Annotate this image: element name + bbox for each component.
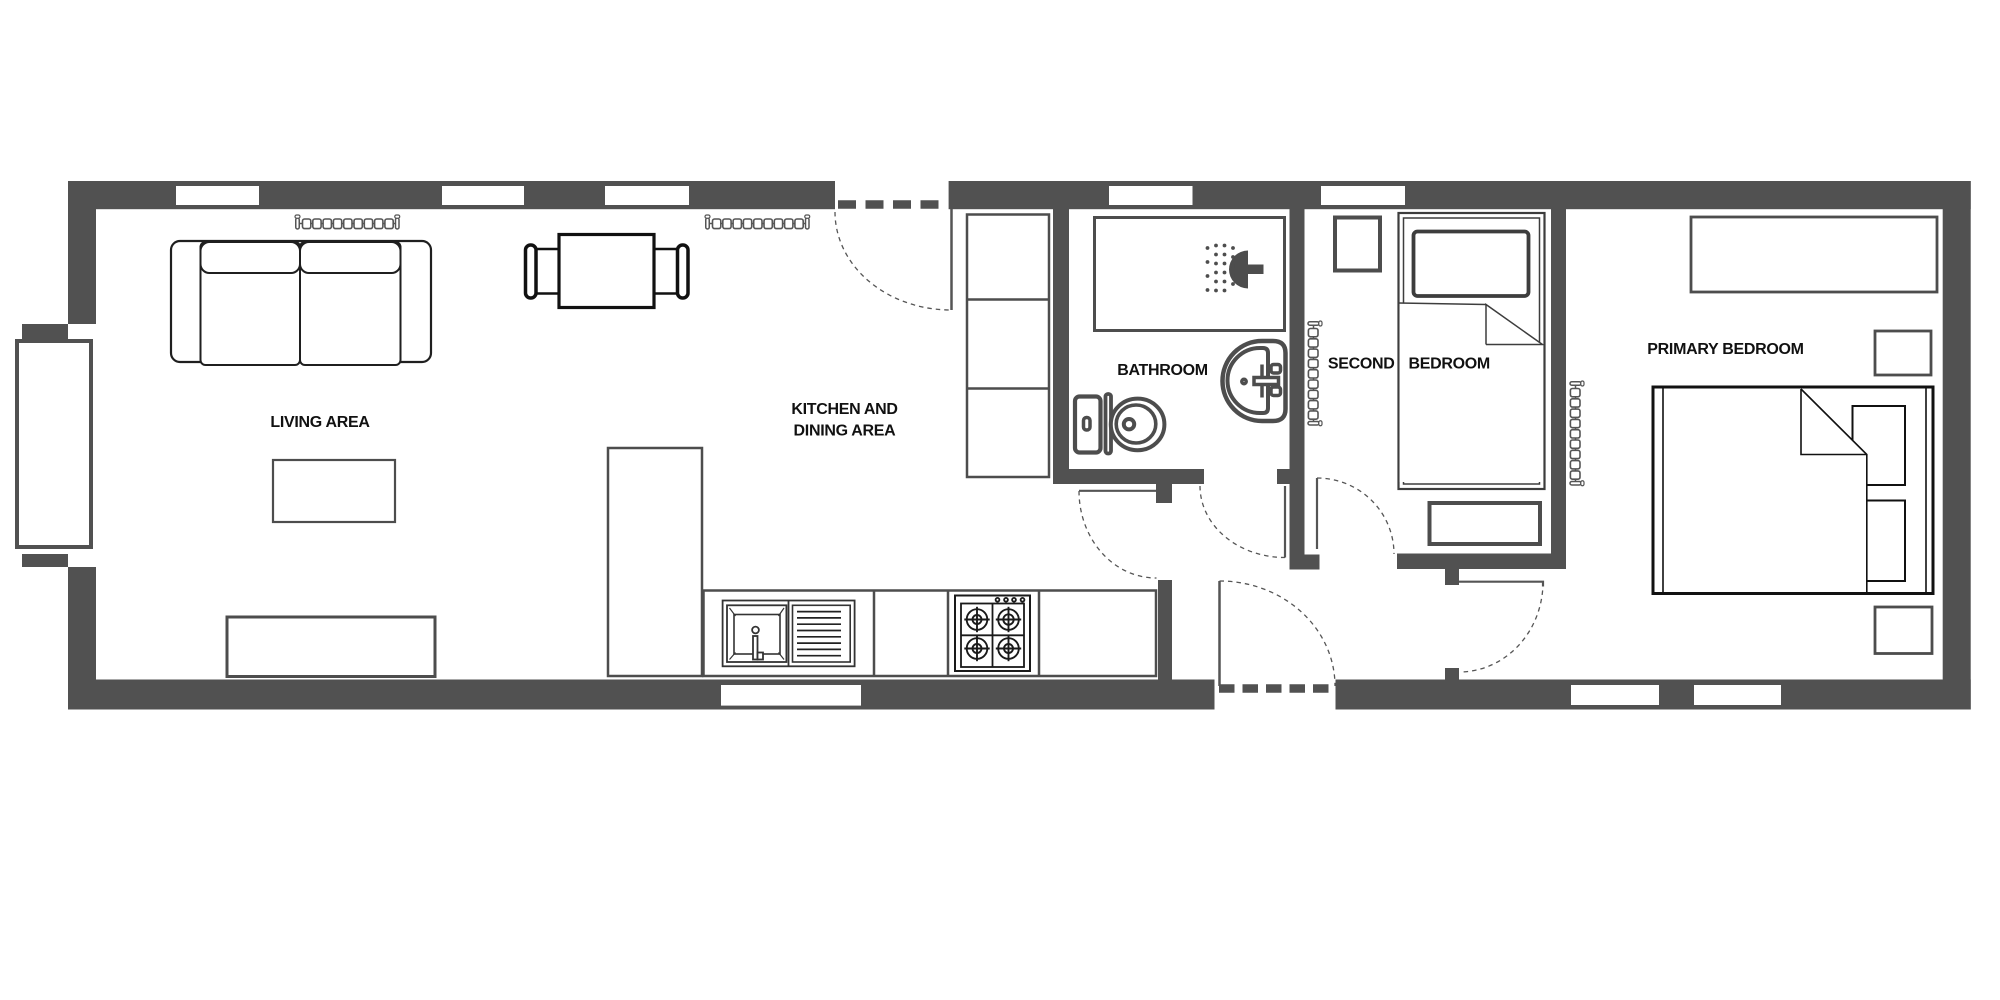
svg-text:PRIMARY BEDROOM: PRIMARY BEDROOM: [1647, 341, 1803, 358]
svg-text:DINING AREA: DINING AREA: [794, 422, 897, 439]
svg-text:LIVING AREA: LIVING AREA: [270, 414, 370, 431]
svg-text:SECOND: SECOND: [1328, 356, 1395, 373]
svg-text:BEDROOM: BEDROOM: [1409, 356, 1490, 373]
svg-text:BATHROOM: BATHROOM: [1117, 362, 1208, 379]
svg-text:KITCHEN AND: KITCHEN AND: [791, 401, 897, 418]
